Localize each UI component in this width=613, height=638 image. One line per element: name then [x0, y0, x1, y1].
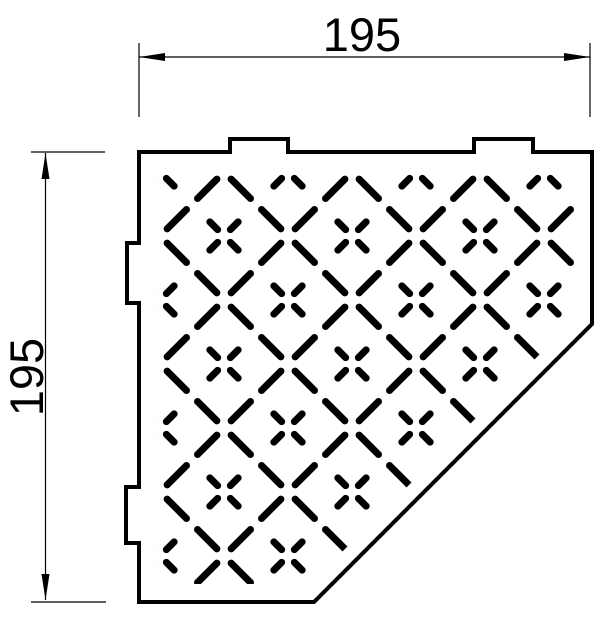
perforation-pattern	[82, 82, 613, 638]
dimension-label-top: 195	[323, 8, 401, 61]
drawing-page: 195 195	[0, 0, 613, 638]
dimension-label-left: 195	[0, 338, 53, 416]
drawing-svg: 195 195	[0, 0, 613, 638]
